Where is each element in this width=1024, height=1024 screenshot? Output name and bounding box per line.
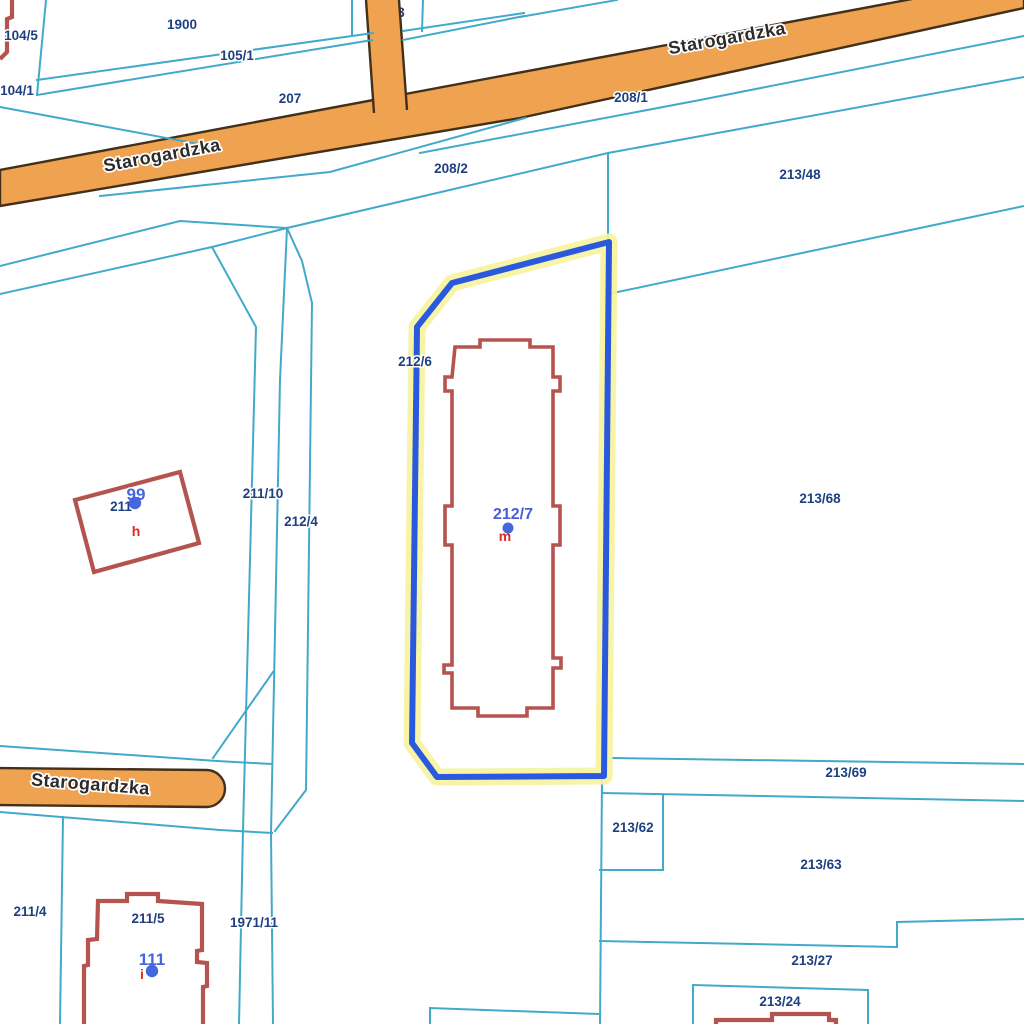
parcel-label-208-2: 208/2	[434, 161, 468, 176]
parcel-label-211-5: 211/5	[131, 911, 165, 926]
map-labels: 104/51900105/1104/1207208/1208/2213/4821…	[0, 17, 867, 1009]
parcel-label-212-6: 212/6	[398, 354, 432, 369]
address-point-dot	[146, 965, 158, 977]
building-parcel-213-24	[716, 1014, 836, 1024]
parcel-label-208-1: 208/1	[614, 90, 648, 105]
selected-parcel-centroid-dot	[503, 523, 514, 534]
parcel-label-1900: 1900	[167, 17, 197, 32]
parcel-label-1971-11: 1971/11	[230, 915, 279, 930]
parcel-label-207: 207	[279, 91, 302, 106]
parcel-label-213-62: 213/62	[612, 820, 653, 835]
cadastral-map[interactable]: 131971/12	[0, 0, 1024, 1024]
map-viewport[interactable]: 131971/12	[0, 0, 1024, 1024]
parcel-label-211-4: 211/4	[13, 904, 47, 919]
parcel-label-104-5: 104/5	[4, 28, 38, 43]
parcel-label-211-10: 211/10	[243, 486, 284, 501]
parcel-label-212-4: 212/4	[284, 514, 318, 529]
parcel-label-213-68: 213/68	[799, 491, 841, 506]
building-function-letter: i	[140, 966, 144, 982]
parcel-label-213-27: 213/27	[791, 953, 832, 968]
parcel-label-213-48: 213/48	[779, 167, 821, 182]
parcel-label-213-63: 213/63	[800, 857, 842, 872]
parcel-label-104-1: 104/1	[0, 83, 34, 98]
address-point-dot	[129, 497, 141, 509]
parcel-label-213-24: 213/24	[759, 994, 801, 1009]
parcel-label-105-1: 105/1	[220, 48, 254, 63]
selected-parcel-label: 212/7	[493, 506, 533, 523]
parcel-label-213-69: 213/69	[825, 765, 866, 780]
building-function-letter: h	[132, 523, 141, 539]
